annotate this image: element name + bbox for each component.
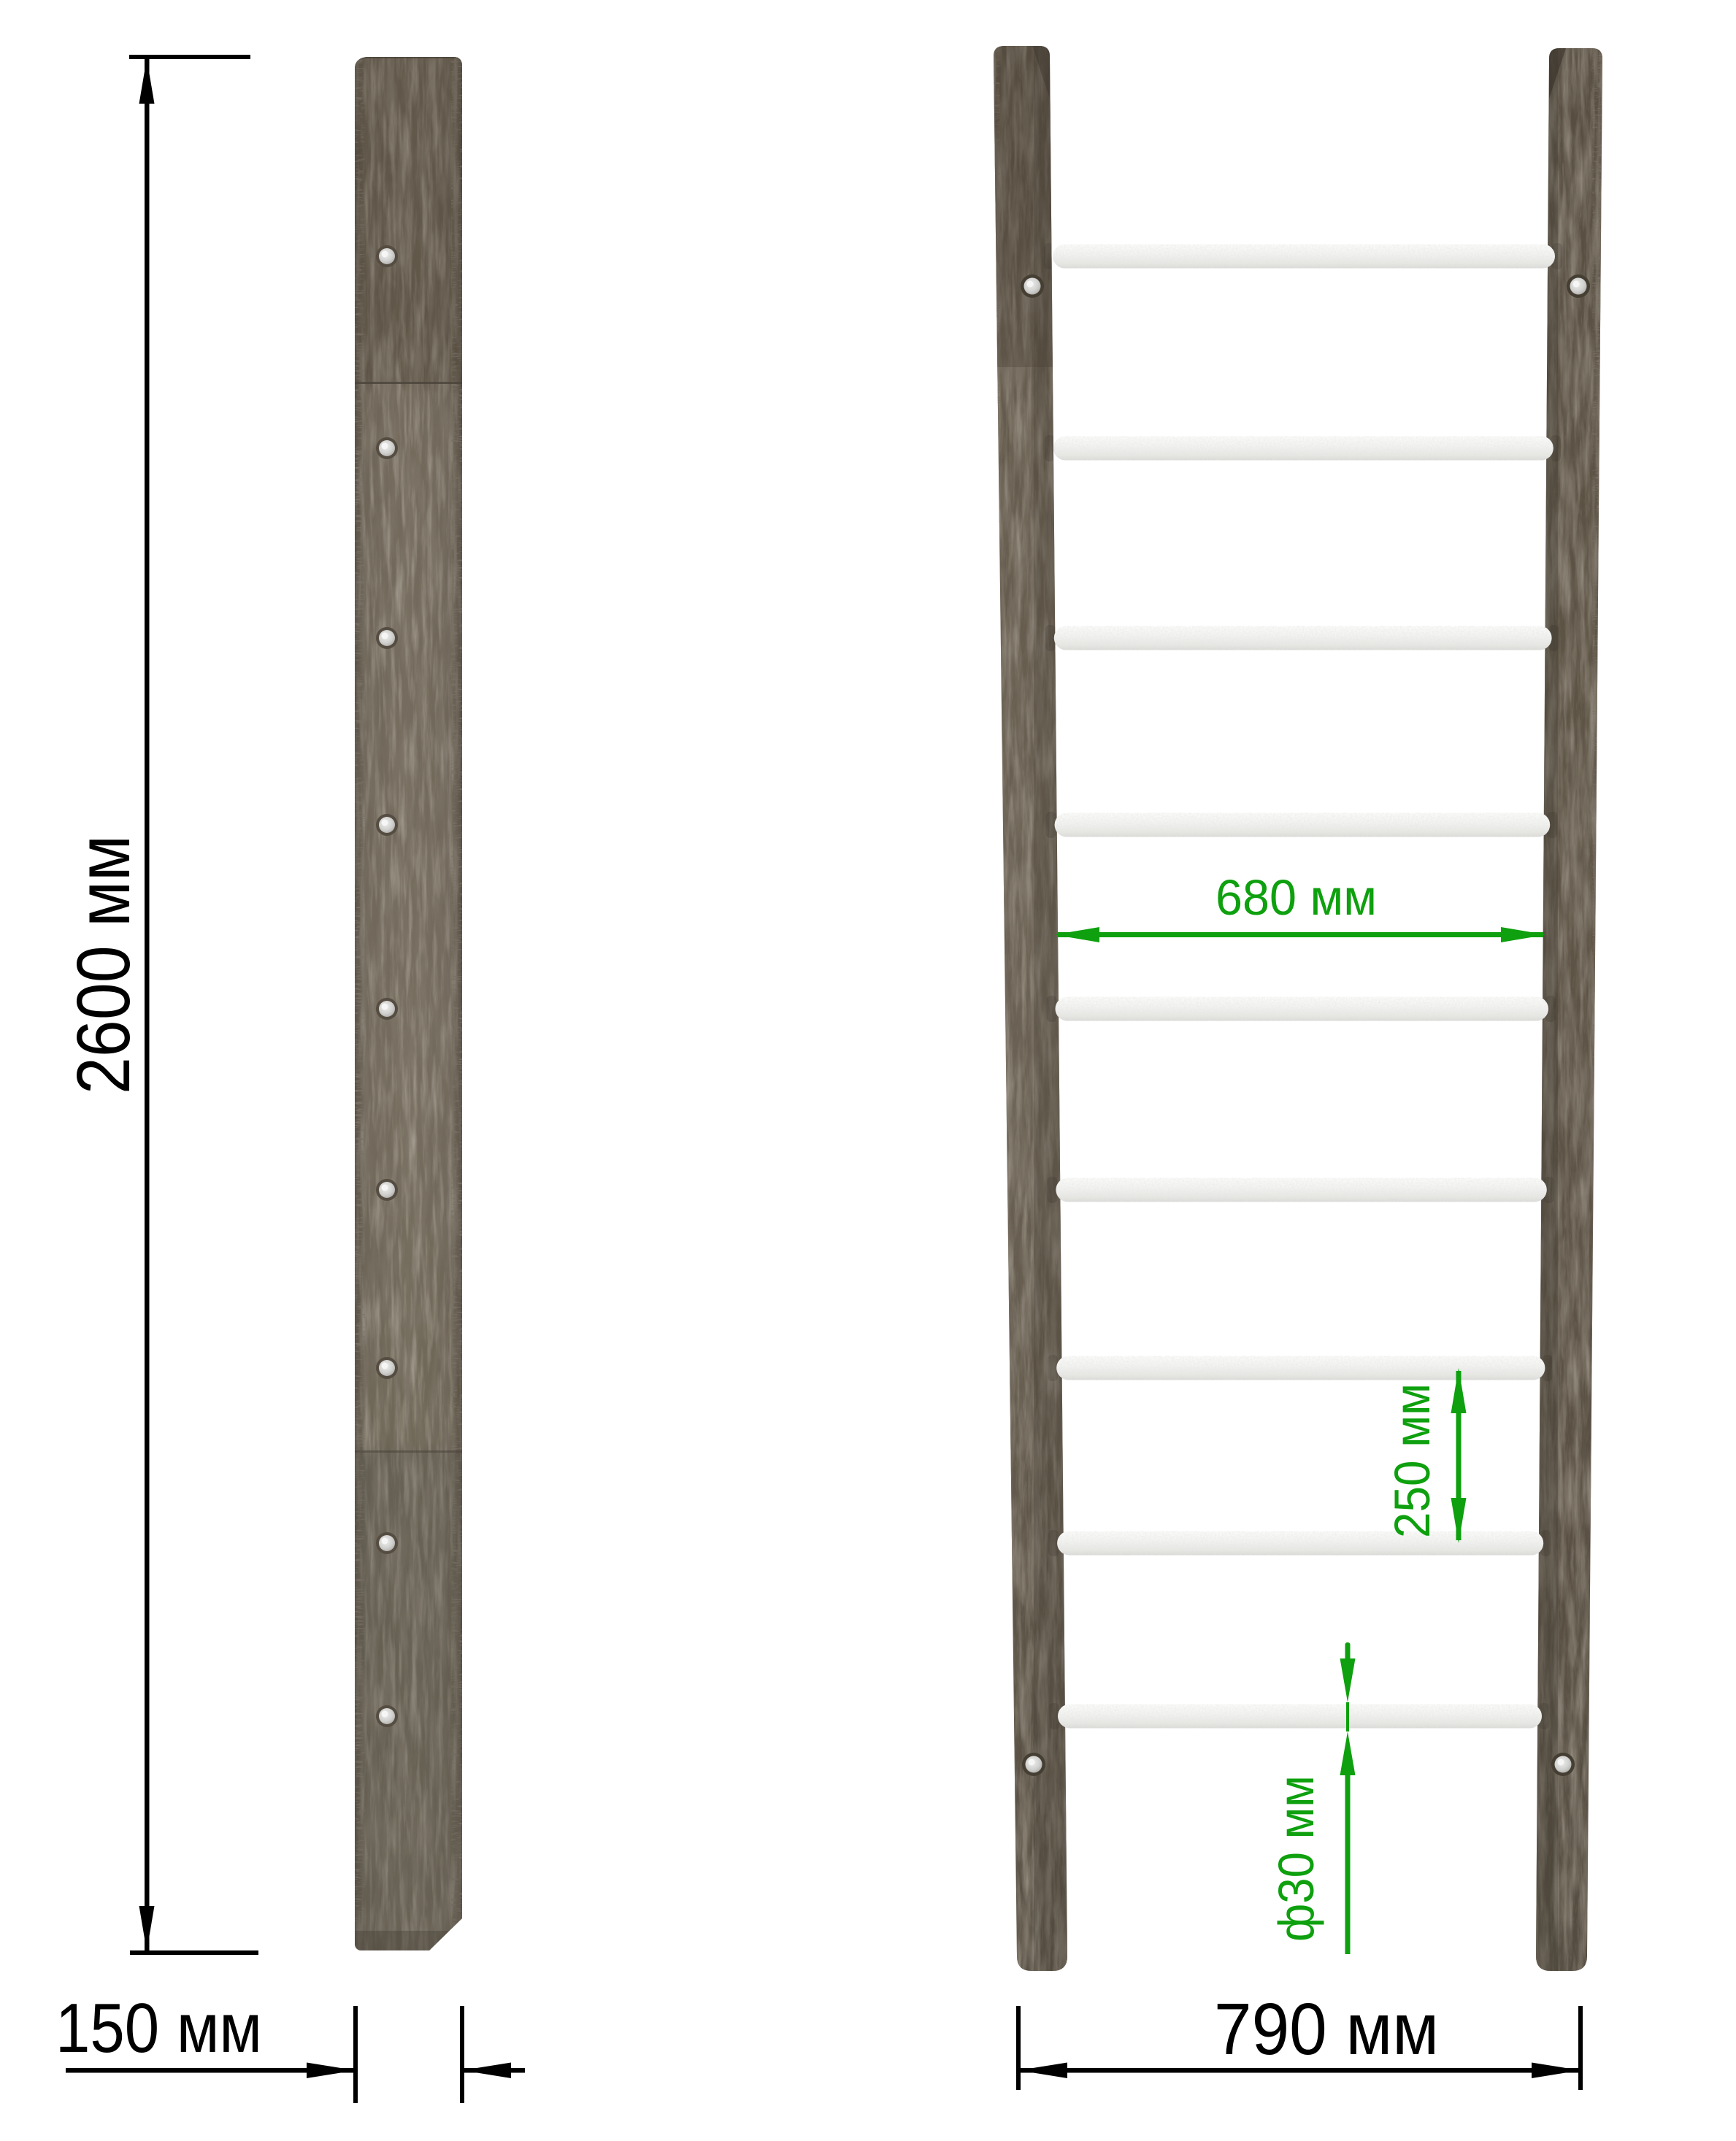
svg-text:2600 мм: 2600 мм bbox=[61, 835, 145, 1094]
svg-text:250 мм: 250 мм bbox=[1384, 1383, 1440, 1538]
svg-text:ф30 мм: ф30 мм bbox=[1268, 1775, 1324, 1942]
svg-text:680 мм: 680 мм bbox=[1215, 869, 1377, 926]
svg-text:790 мм: 790 мм bbox=[1214, 1988, 1439, 2070]
svg-text:150 мм: 150 мм bbox=[55, 1989, 262, 2067]
